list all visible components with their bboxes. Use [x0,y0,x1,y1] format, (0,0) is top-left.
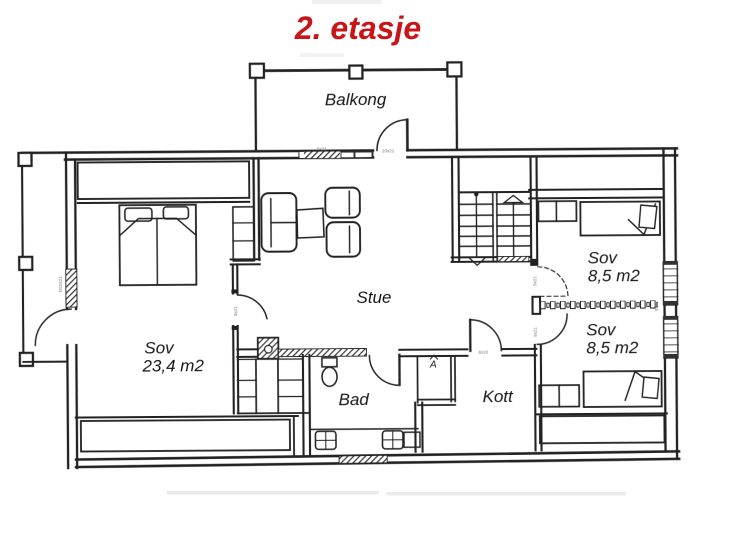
svg-text:2. etasje: 2. etasje [294,10,421,46]
svg-text:Sov: Sov [586,320,617,339]
svg-text:9x21: 9x21 [532,276,537,286]
svg-text:Bad: Bad [339,390,370,409]
svg-text:23,4 m2: 23,4 m2 [141,356,204,375]
svg-text:M10x21: M10x21 [58,276,63,293]
svg-text:8,5 m2: 8,5 m2 [588,266,641,285]
svg-text:Kott: Kott [482,387,514,406]
svg-text:Balkong: Balkong [325,90,387,109]
svg-text:9x12: 9x12 [654,301,659,311]
svg-text:8x20: 8x20 [478,350,488,355]
svg-text:9x21: 9x21 [533,327,538,337]
svg-text:A: A [429,360,437,371]
svg-text:9x21: 9x21 [317,146,327,151]
svg-text:8,5 m2: 8,5 m2 [586,338,639,357]
svg-text:Sov: Sov [588,248,619,267]
svg-text:Stue: Stue [356,288,391,307]
svg-text:8x21: 8x21 [233,306,238,316]
svg-text:10x21: 10x21 [382,148,395,153]
svg-text:Sov: Sov [144,338,175,357]
